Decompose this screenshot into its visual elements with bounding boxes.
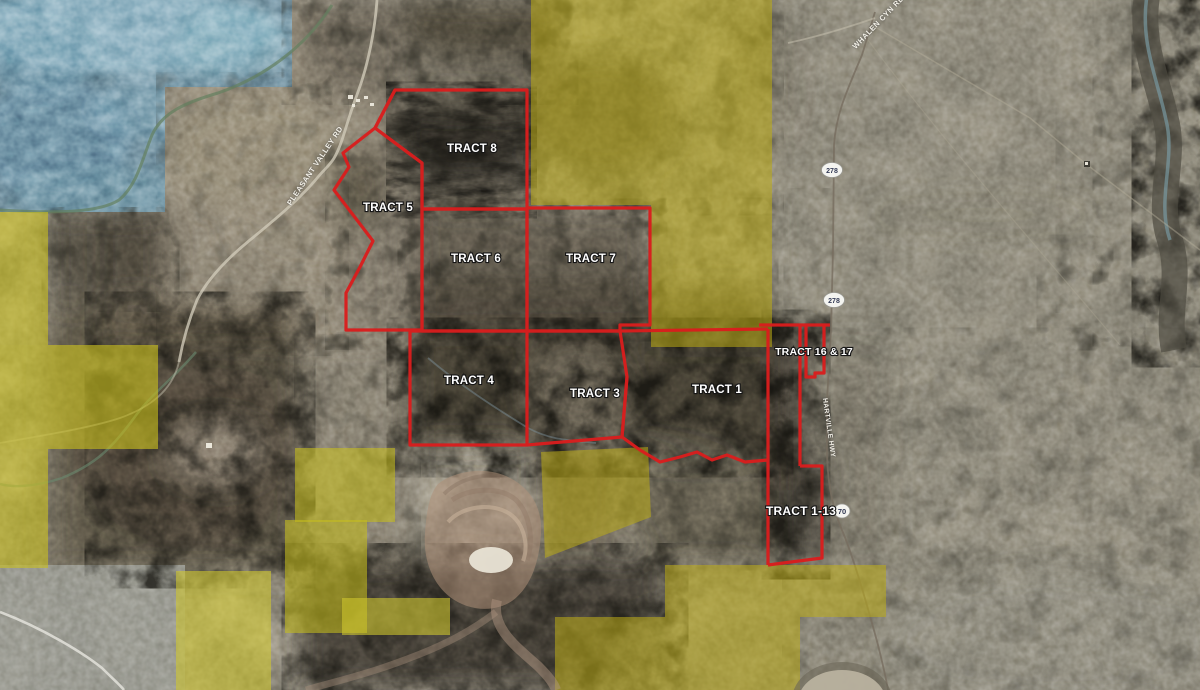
svg-text:278: 278	[828, 298, 840, 305]
svg-text:TRACT 7: TRACT 7	[566, 253, 616, 265]
svg-text:TRACT 6: TRACT 6	[451, 253, 501, 265]
svg-text:TRACT 16 & 17: TRACT 16 & 17	[775, 346, 853, 358]
svg-text:TRACT 3: TRACT 3	[570, 388, 620, 400]
svg-text:TRACT 5: TRACT 5	[363, 202, 413, 214]
svg-text:278: 278	[826, 168, 838, 175]
svg-text:TRACT 8: TRACT 8	[447, 143, 497, 155]
svg-text:TRACT 1-13: TRACT 1-13	[766, 504, 836, 518]
svg-text:TRACT 1: TRACT 1	[692, 384, 742, 396]
svg-text:TRACT 4: TRACT 4	[444, 375, 494, 387]
svg-text:70: 70	[838, 507, 846, 516]
